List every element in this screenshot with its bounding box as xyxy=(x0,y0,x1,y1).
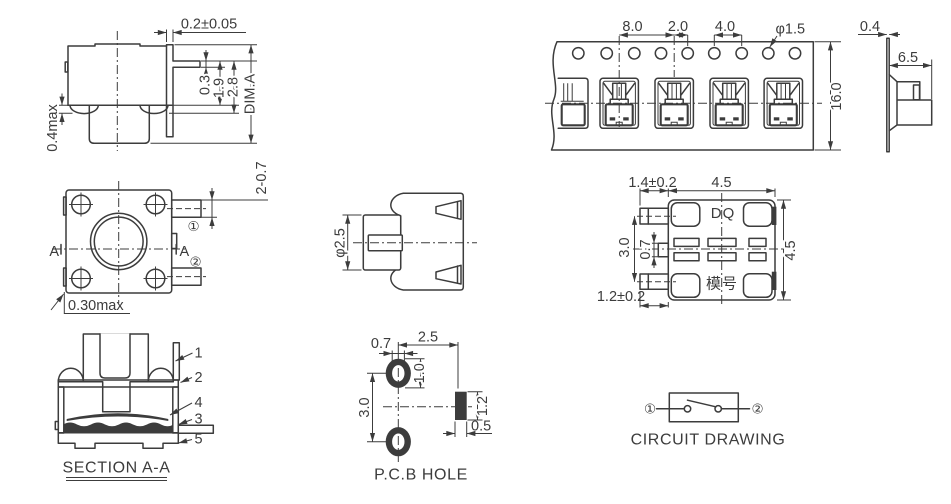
marking-top: DQ xyxy=(711,205,736,222)
pin2-label: ② xyxy=(189,255,201,270)
switch-lever xyxy=(688,400,716,407)
dim-pad-width: 0.5 xyxy=(471,419,491,435)
dim-pocket-to-hole: 2.0 xyxy=(668,19,688,35)
pcb-hole-title: P.C.B HOLE xyxy=(374,467,468,484)
stationary-contacts xyxy=(63,423,173,433)
tape-profile-view: 0.4 6.5 xyxy=(858,19,932,152)
dim-terminal-count: 2-0.7 xyxy=(254,161,270,194)
dim-tab-width: 0.7 xyxy=(638,239,654,259)
dim-sprocket-dia: φ1.5 xyxy=(776,22,806,38)
dim-overall-height: DIM.A xyxy=(243,74,259,115)
stem-terminal-1 xyxy=(436,201,461,220)
left-tab-upper xyxy=(64,197,67,215)
engineering-drawing: 0.2±0.05 0.3 1.9 2.8 DIM.A 0.4max xyxy=(0,0,951,504)
top-view: A A ① ② 2-0.7 0.30max xyxy=(49,161,270,314)
corner-rivets xyxy=(69,193,168,291)
left-tab-lower xyxy=(64,268,67,286)
dim-tape-thickness: 0.4 xyxy=(860,19,880,35)
contact-left xyxy=(684,406,690,412)
section-view: 1 2 4 3 5 SECTION A-A xyxy=(55,333,213,480)
callout-3: 3 xyxy=(195,412,203,428)
dim-terminal-top-length: 1.4±0.2 xyxy=(628,175,676,191)
side-bracket-and-pin xyxy=(167,45,201,137)
plunger-inner xyxy=(94,217,143,266)
dim-hole-to-pad: 2.5 xyxy=(418,330,438,346)
side-stem xyxy=(89,105,149,143)
dim-pad-height: 1.2 xyxy=(475,396,491,416)
side-domes xyxy=(70,105,168,113)
pin1-label: ① xyxy=(187,219,199,234)
base-left-nub xyxy=(55,422,58,430)
circuit-title: CIRCUIT DRAWING xyxy=(631,432,786,449)
section-mark-left: A xyxy=(49,244,59,260)
tape-view: 8.0 2.0 4.0 φ1.5 16.0 xyxy=(545,19,845,150)
callout-1: 1 xyxy=(195,346,203,362)
dim-hole-height: 1.0 xyxy=(412,363,428,383)
bracket-section xyxy=(173,343,179,380)
plunger-slot xyxy=(100,333,130,378)
dim-tape-width: 16.0 xyxy=(829,82,845,110)
pcb-hole-view: 0.7 2.5 1.0 3.0 1.2 0.5 P.C.B HOLE xyxy=(357,330,492,484)
callout-5: 5 xyxy=(195,432,203,448)
right-tab-upper xyxy=(772,207,777,225)
dim-pocket-pitch: 8.0 xyxy=(622,19,642,35)
dim-hole-pitch: 3.0 xyxy=(357,397,373,417)
pocket-rib xyxy=(914,85,920,100)
callout-4: 4 xyxy=(195,395,203,411)
dim-body-height: 2.8 xyxy=(226,77,242,97)
tape-outline xyxy=(552,42,814,150)
base-section xyxy=(58,433,178,449)
dim-standoff: 0.4max xyxy=(45,103,61,151)
stem-terminal-2 xyxy=(436,265,461,284)
side-left-nub xyxy=(65,62,68,72)
circuit-view: ① ② CIRCUIT DRAWING xyxy=(631,393,786,449)
right-tab-lower xyxy=(772,272,777,290)
dim-terminal-pitch: 3.0 xyxy=(617,237,633,257)
drawing-canvas: 0.2±0.05 0.3 1.9 2.8 DIM.A 0.4max xyxy=(0,0,951,504)
dim-hole-width: 0.7 xyxy=(371,336,391,352)
dim-body-width: 4.5 xyxy=(711,175,731,191)
stem-side-view: φ2.5 xyxy=(333,193,478,290)
pocket-profile xyxy=(889,75,932,131)
pcb-pad xyxy=(455,392,467,420)
wall-right xyxy=(173,387,179,433)
dim-sprocket-pitch: 4.0 xyxy=(715,19,735,35)
bottom-slots xyxy=(674,238,766,260)
section-title: SECTION A-A xyxy=(63,460,171,477)
circuit-pin1: ① xyxy=(644,402,656,417)
dim-pocket-depth: 6.5 xyxy=(898,50,918,66)
dim-stem-diameter: φ2.5 xyxy=(333,228,349,258)
circuit-pin2: ② xyxy=(751,402,763,417)
dim-body-height-right: 4.5 xyxy=(783,240,799,260)
callout-2: 2 xyxy=(195,370,203,386)
circuit-box xyxy=(669,393,738,422)
section-mark-right: A xyxy=(180,244,190,260)
dim-tab-protrusion: 0.30max xyxy=(68,298,124,314)
bottom-view: DQ 模号 1.4±0.2 4.5 3.0 0.7 1.2±0.2 4.5 xyxy=(597,175,799,308)
dim-top-thickness: 0.2±0.05 xyxy=(181,17,237,33)
dim-terminal-bottom-length: 1.2±0.2 xyxy=(597,289,645,305)
movable-contact-disc xyxy=(67,413,169,421)
left-middle-tab xyxy=(658,243,668,256)
tape-strip xyxy=(887,38,889,151)
sprocket-holes xyxy=(573,48,801,59)
wall-left xyxy=(58,387,64,433)
side-view: 0.2±0.05 0.3 1.9 2.8 DIM.A 0.4max xyxy=(45,17,259,152)
